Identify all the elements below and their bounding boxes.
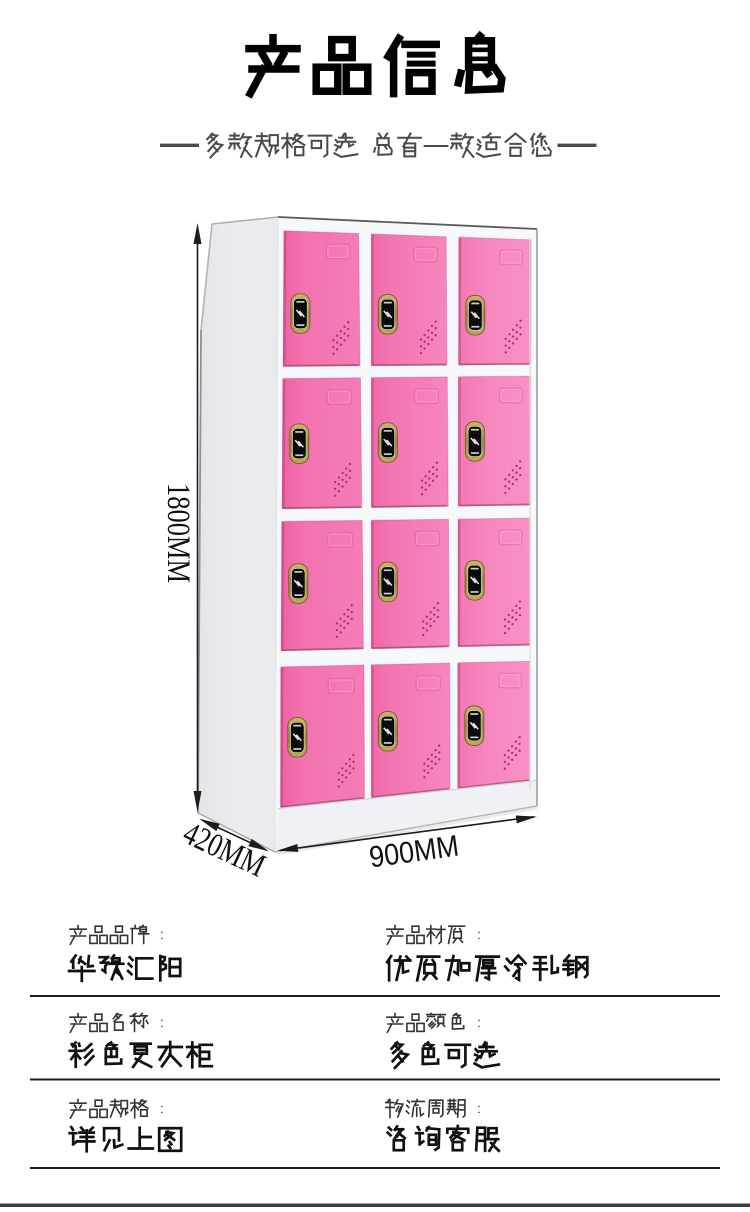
svg-text:1800MM: 1800MM (160, 483, 196, 583)
